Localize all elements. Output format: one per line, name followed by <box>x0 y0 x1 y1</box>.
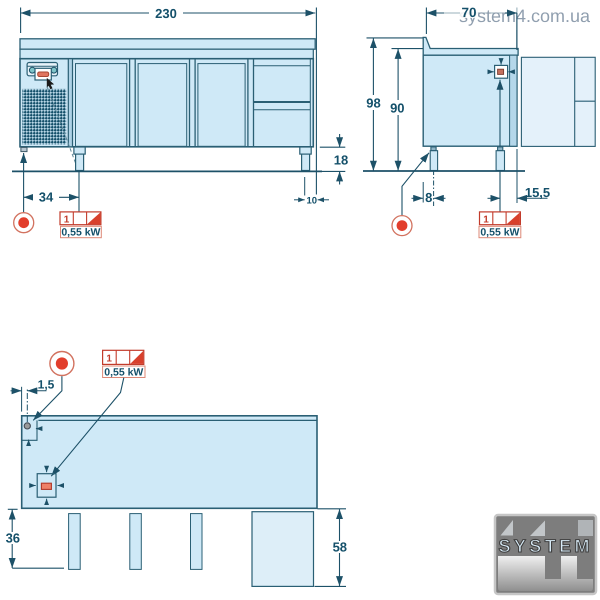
svg-text:15,5: 15,5 <box>525 185 550 200</box>
svg-text:58: 58 <box>333 540 347 555</box>
svg-text:98: 98 <box>366 96 380 111</box>
svg-text:36: 36 <box>6 531 20 546</box>
svg-text:10: 10 <box>307 196 318 207</box>
svg-text:SYSTEM: SYSTEM <box>499 536 593 556</box>
svg-text:1: 1 <box>64 214 70 225</box>
svg-text:34: 34 <box>39 190 54 205</box>
svg-text:1: 1 <box>483 214 489 225</box>
svg-text:1: 1 <box>106 354 112 365</box>
svg-text:230: 230 <box>155 6 177 21</box>
svg-text:70: 70 <box>461 5 476 20</box>
svg-text:18: 18 <box>334 153 348 168</box>
svg-text:0,55 kW: 0,55 kW <box>104 366 143 378</box>
svg-text:0,55 kW: 0,55 kW <box>480 227 519 239</box>
svg-text:0,55 kW: 0,55 kW <box>61 227 100 239</box>
svg-text:8: 8 <box>425 190 432 205</box>
svg-text:90: 90 <box>390 101 404 116</box>
svg-text:1,5: 1,5 <box>38 378 55 392</box>
svg-text:system4.com.ua: system4.com.ua <box>459 6 591 26</box>
